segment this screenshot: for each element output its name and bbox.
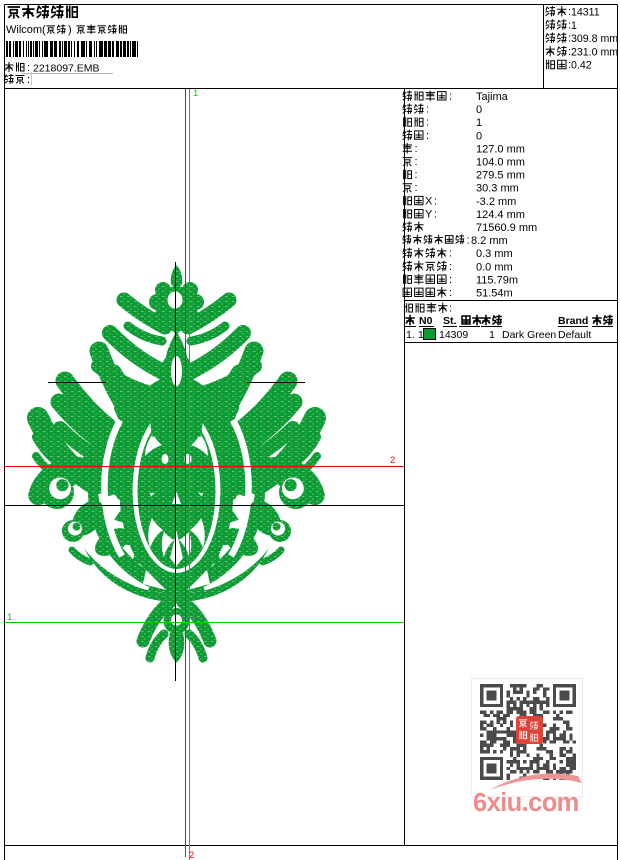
svg-text:): ) bbox=[68, 24, 72, 36]
svg-text:Tajima: Tajima bbox=[476, 91, 509, 103]
svg-text::: : bbox=[449, 274, 452, 286]
svg-text::: : bbox=[415, 182, 418, 194]
svg-text::: : bbox=[449, 303, 452, 315]
svg-text::: : bbox=[449, 248, 452, 260]
svg-text:0.0 mm: 0.0 mm bbox=[476, 261, 513, 273]
svg-text:Y: Y bbox=[425, 208, 433, 220]
svg-text:X: X bbox=[425, 195, 433, 207]
svg-text:1: 1 bbox=[193, 88, 198, 99]
svg-text:14309: 14309 bbox=[439, 329, 468, 341]
svg-text:279.5 mm: 279.5 mm bbox=[476, 170, 525, 182]
svg-text:51.54m: 51.54m bbox=[476, 288, 513, 300]
svg-text:2218097.EMB: 2218097.EMB bbox=[33, 63, 100, 75]
svg-text:N0: N0 bbox=[419, 315, 433, 327]
svg-text:104.0 mm: 104.0 mm bbox=[476, 157, 525, 169]
svg-text:1: 1 bbox=[7, 612, 12, 623]
svg-text:124.4 mm: 124.4 mm bbox=[476, 209, 525, 221]
svg-text::: : bbox=[434, 208, 437, 220]
svg-text:St.: St. bbox=[443, 315, 457, 327]
svg-text:-3.2 mm: -3.2 mm bbox=[476, 196, 516, 208]
svg-text::: : bbox=[415, 169, 418, 181]
svg-text:8.2 mm: 8.2 mm bbox=[471, 235, 508, 247]
svg-text:127.0 mm: 127.0 mm bbox=[476, 143, 525, 155]
svg-text::: : bbox=[449, 91, 452, 103]
svg-text:6xiu.com: 6xiu.com bbox=[473, 789, 579, 817]
svg-text:0: 0 bbox=[476, 104, 482, 116]
svg-text::: : bbox=[426, 104, 429, 116]
svg-text::: : bbox=[449, 261, 452, 273]
svg-text:309.8 mm: 309.8 mm bbox=[571, 33, 618, 45]
svg-text::: : bbox=[426, 117, 429, 129]
svg-text:115.79m: 115.79m bbox=[476, 274, 518, 286]
svg-text::: : bbox=[27, 62, 30, 74]
svg-text:2: 2 bbox=[390, 455, 395, 466]
svg-text:0.3 mm: 0.3 mm bbox=[476, 248, 513, 260]
svg-text:Default: Default bbox=[558, 329, 591, 341]
svg-text::: : bbox=[415, 143, 418, 155]
svg-text:0: 0 bbox=[476, 130, 482, 142]
svg-text:71560.9 mm: 71560.9 mm bbox=[476, 222, 537, 234]
svg-text::: : bbox=[415, 156, 418, 168]
svg-text:1.: 1. bbox=[406, 329, 415, 341]
svg-text:30.3 mm: 30.3 mm bbox=[476, 183, 519, 195]
svg-text:231.0 mm: 231.0 mm bbox=[571, 46, 618, 58]
svg-text::: : bbox=[27, 74, 30, 86]
svg-text:Dark Green: Dark Green bbox=[502, 329, 556, 341]
svg-text:1: 1 bbox=[571, 20, 577, 32]
svg-text::: : bbox=[449, 287, 452, 299]
svg-text::: : bbox=[434, 195, 437, 207]
svg-text:Brand: Brand bbox=[558, 315, 588, 327]
svg-text::: : bbox=[467, 235, 470, 247]
svg-text:Wilcom(: Wilcom( bbox=[6, 24, 46, 36]
svg-text:1: 1 bbox=[489, 329, 495, 341]
svg-text:1: 1 bbox=[476, 117, 482, 129]
svg-text:14311: 14311 bbox=[571, 7, 600, 19]
svg-text::: : bbox=[426, 130, 429, 142]
svg-text:0.42: 0.42 bbox=[571, 60, 592, 72]
